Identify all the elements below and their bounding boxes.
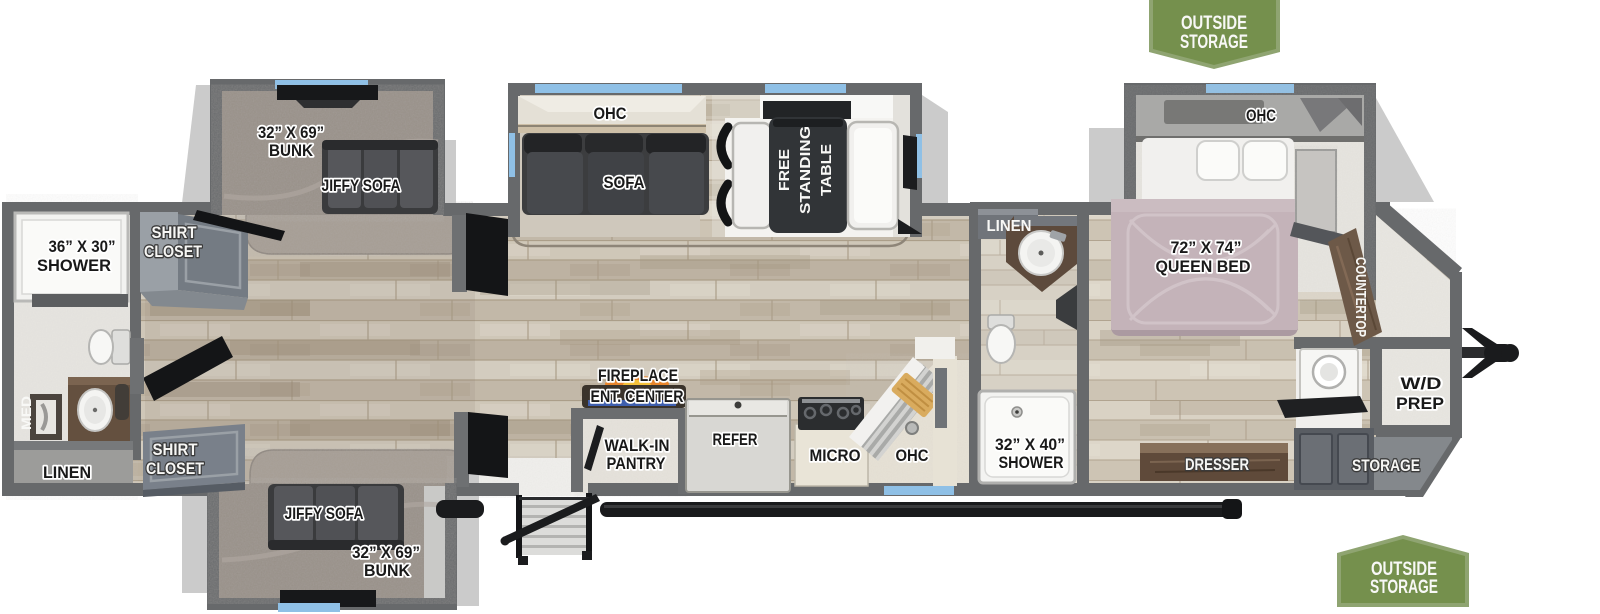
svg-text:SOFA: SOFA [604, 173, 645, 192]
svg-text:JIFFY SOFA: JIFFY SOFA [285, 504, 364, 523]
svg-text:BUNK: BUNK [269, 141, 314, 160]
svg-text:DRESSER: DRESSER [1185, 455, 1249, 474]
svg-text:72” X 74”: 72” X 74” [1171, 238, 1242, 257]
svg-text:LINEN: LINEN [43, 463, 91, 482]
svg-text:STORAGE: STORAGE [1370, 577, 1438, 598]
svg-text:WALK-IN: WALK-IN [605, 436, 670, 455]
svg-text:STORAGE: STORAGE [1352, 456, 1420, 475]
svg-text:STORAGE: STORAGE [1180, 32, 1248, 53]
svg-text:PANTRY: PANTRY [607, 454, 667, 473]
svg-text:36” X 30”: 36” X 30” [49, 237, 116, 256]
svg-text:32” X 69”: 32” X 69” [258, 123, 324, 142]
svg-text:SHOWER: SHOWER [999, 453, 1064, 472]
svg-text:OUTSIDE: OUTSIDE [1181, 13, 1247, 34]
svg-text:QUEEN BED: QUEEN BED [1156, 257, 1251, 276]
svg-text:FIREPLACE: FIREPLACE [598, 366, 678, 385]
svg-text:ENT. CENTER: ENT. CENTER [591, 387, 684, 406]
svg-text:CLOSET: CLOSET [144, 242, 203, 261]
svg-text:TABLE: TABLE [818, 144, 835, 196]
svg-text:COUNTERTOP: COUNTERTOP [1352, 257, 1369, 337]
svg-text:OHC: OHC [1246, 106, 1276, 125]
svg-text:LINEN: LINEN [987, 218, 1032, 235]
svg-text:MICRO: MICRO [810, 446, 861, 465]
svg-text:SHIRT: SHIRT [153, 440, 199, 459]
svg-text:SHIRT: SHIRT [152, 223, 198, 242]
svg-text:32” X 69”: 32” X 69” [352, 543, 420, 562]
svg-text:REFER: REFER [713, 430, 758, 449]
svg-text:SHOWER: SHOWER [37, 256, 111, 275]
svg-text:32” X 40”: 32” X 40” [995, 435, 1065, 454]
svg-text:CLOSET: CLOSET [146, 459, 205, 478]
svg-text:PREP: PREP [1396, 394, 1444, 413]
svg-text:OHC: OHC [594, 104, 627, 123]
svg-text:FREE: FREE [776, 149, 793, 191]
svg-text:STANDING: STANDING [797, 126, 814, 214]
svg-text:MED: MED [18, 396, 34, 430]
svg-text:W/D: W/D [1401, 374, 1442, 393]
svg-text:BUNK: BUNK [364, 561, 411, 580]
svg-text:OHC: OHC [896, 446, 929, 465]
svg-text:JIFFY SOFA: JIFFY SOFA [322, 176, 401, 195]
